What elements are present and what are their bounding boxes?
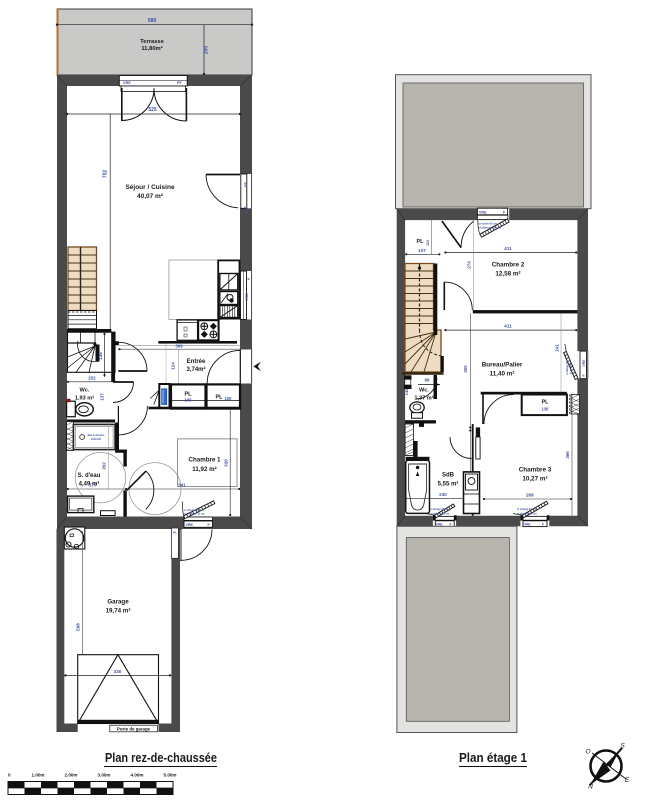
svg-text:PF: PF <box>177 81 183 85</box>
svg-text:4.00m: 4.00m <box>130 773 143 778</box>
svg-text:st plafond: st plafond <box>570 362 573 374</box>
svg-text:F: F <box>582 374 586 376</box>
svg-text:11,40 m²: 11,40 m² <box>490 371 515 378</box>
svg-text:12,58 m²: 12,58 m² <box>495 271 520 278</box>
svg-text:1,93 m²: 1,93 m² <box>75 395 94 402</box>
svg-text:S: S <box>620 743 625 750</box>
svg-text:PL: PL <box>216 395 224 401</box>
svg-text:st plafond 55 cm: st plafond 55 cm <box>430 512 451 515</box>
svg-text:VRE: VRE <box>186 523 194 527</box>
svg-text:VRE: VRE <box>245 293 249 301</box>
svg-text:Chambre 1: Chambre 1 <box>189 457 222 464</box>
svg-text:140: 140 <box>404 388 409 395</box>
svg-text:10,27 m²: 10,27 m² <box>522 476 547 483</box>
svg-text:350: 350 <box>463 365 468 373</box>
svg-text:st vitrée 90 cm: st vitrée 90 cm <box>479 222 498 226</box>
svg-text:st vitrage 95 cm: st vitrage 95 cm <box>517 508 537 511</box>
svg-text:100: 100 <box>225 396 233 401</box>
svg-text:st plafond 55 cm: st plafond 55 cm <box>184 512 205 516</box>
svg-text:5.00m: 5.00m <box>163 773 176 778</box>
svg-text:40,07 m²: 40,07 m² <box>137 193 164 200</box>
svg-text:Terrasse: Terrasse <box>140 39 165 45</box>
svg-text:137: 137 <box>100 393 105 401</box>
svg-text:160x120: 160x120 <box>91 437 102 441</box>
svg-text:PL: PL <box>542 400 549 406</box>
svg-text:Bureau/Palier: Bureau/Palier <box>482 362 523 369</box>
svg-text:O: O <box>585 749 590 756</box>
svg-text:Séjour / Cuisine: Séjour / Cuisine <box>125 184 175 191</box>
svg-text:PL: PL <box>173 531 177 535</box>
svg-text:S. d'eau: S. d'eau <box>78 473 101 479</box>
svg-text:Entrée: Entrée <box>187 359 206 365</box>
svg-text:st vitrage 95 cm: st vitrage 95 cm <box>430 508 450 511</box>
svg-text:177: 177 <box>89 483 97 488</box>
svg-text:589: 589 <box>148 18 157 24</box>
svg-text:Wc.: Wc. <box>419 388 429 394</box>
svg-text:136: 136 <box>98 352 103 360</box>
svg-text:152: 152 <box>88 375 96 380</box>
svg-text:369: 369 <box>175 344 183 349</box>
svg-text:Wc.: Wc. <box>80 388 90 394</box>
svg-text:Chambre 2: Chambre 2 <box>492 262 525 269</box>
svg-text:1.00m: 1.00m <box>31 773 44 778</box>
svg-text:VRE: VRE <box>244 205 248 213</box>
svg-text:241: 241 <box>554 344 559 352</box>
svg-text:Plan étage 1: Plan étage 1 <box>459 751 527 765</box>
svg-text:330: 330 <box>114 669 122 674</box>
svg-text:124: 124 <box>171 362 176 370</box>
svg-text:Chambre 3: Chambre 3 <box>519 467 552 474</box>
svg-text:268: 268 <box>526 493 534 498</box>
svg-text:F: F <box>542 522 544 526</box>
svg-text:411: 411 <box>504 246 512 251</box>
svg-text:98: 98 <box>425 378 430 383</box>
svg-text:320: 320 <box>223 459 228 467</box>
svg-text:202: 202 <box>101 462 106 470</box>
svg-text:366: 366 <box>565 451 570 459</box>
svg-text:st plafond 55 cm: st plafond 55 cm <box>517 512 538 515</box>
svg-text:0: 0 <box>8 773 11 778</box>
svg-text:274: 274 <box>466 261 471 269</box>
svg-text:525: 525 <box>148 107 157 113</box>
svg-text:3,74m²: 3,74m² <box>186 366 205 373</box>
svg-text:123: 123 <box>426 240 430 246</box>
svg-text:702: 702 <box>103 170 109 179</box>
svg-text:VRE: VRE <box>582 359 586 367</box>
svg-text:Garage: Garage <box>107 599 129 606</box>
svg-text:st vitrage 95 cm: st vitrage 95 cm <box>184 508 204 512</box>
svg-text:1,37 m²: 1,37 m² <box>414 395 433 402</box>
svg-text:3.00m: 3.00m <box>97 773 110 778</box>
svg-text:598: 598 <box>75 623 80 631</box>
svg-text:PF: PF <box>244 181 248 187</box>
svg-text:411: 411 <box>504 324 512 329</box>
svg-text:341: 341 <box>178 483 186 488</box>
svg-text:11,92 m²: 11,92 m² <box>192 466 216 473</box>
svg-text:VRE: VRE <box>123 81 131 85</box>
svg-text:SdB: SdB <box>442 473 455 479</box>
svg-text:N: N <box>588 784 593 791</box>
svg-text:Porte de garage: Porte de garage <box>117 726 151 731</box>
svg-text:230: 230 <box>439 492 447 497</box>
svg-text:107: 107 <box>418 248 426 253</box>
svg-text:100: 100 <box>185 398 193 403</box>
svg-text:2.00m: 2.00m <box>64 773 77 778</box>
svg-text:5,55 m²: 5,55 m² <box>438 481 459 488</box>
svg-text:VRE: VRE <box>524 522 531 526</box>
svg-text:E: E <box>625 777 630 784</box>
svg-text:130: 130 <box>542 407 550 412</box>
svg-text:PL: PL <box>417 239 425 245</box>
svg-text:VRE: VRE <box>479 211 487 215</box>
svg-text:11,80m²: 11,80m² <box>141 45 162 52</box>
svg-text:Bac à douche: Bac à douche <box>88 433 105 437</box>
svg-text:Plan rez-de-chaussée: Plan rez-de-chaussée <box>105 751 217 765</box>
svg-text:19,74 m²: 19,74 m² <box>106 608 131 615</box>
svg-text:200: 200 <box>204 46 210 55</box>
svg-text:st plafond 200 cm: st plafond 200 cm <box>479 225 502 229</box>
